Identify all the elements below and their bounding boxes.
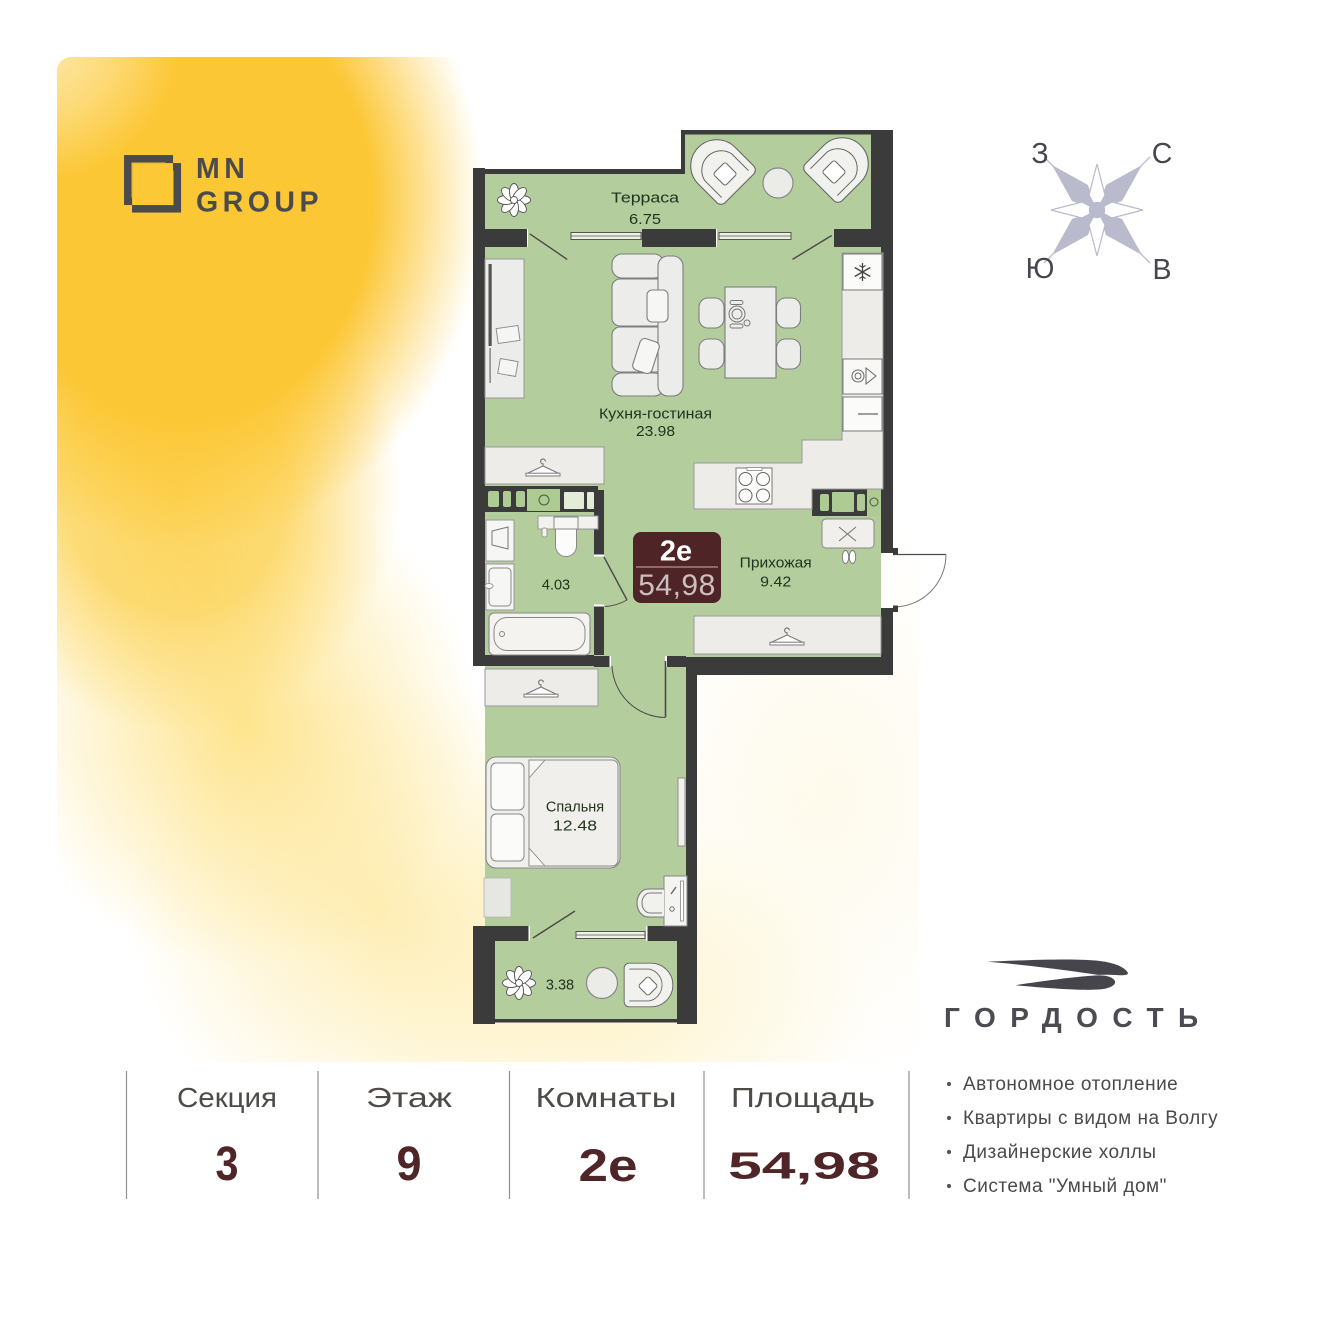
svg-text:GROUP: GROUP — [196, 187, 323, 219]
svg-text:Площадь: Площадь — [731, 1082, 875, 1113]
svg-text:Этаж: Этаж — [366, 1082, 452, 1113]
svg-text:Дизайнерские холлы: Дизайнерские холлы — [963, 1142, 1157, 1163]
svg-text:В: В — [1152, 254, 1171, 286]
svg-text:ГОРДОСТЬ: ГОРДОСТЬ — [944, 1002, 1213, 1033]
svg-text:2е: 2е — [660, 536, 692, 568]
svg-text:54,98: 54,98 — [728, 1146, 880, 1188]
svg-text:3.38: 3.38 — [546, 978, 574, 994]
svg-text:Кухня-гостиная: Кухня-гостиная — [599, 407, 712, 423]
svg-text:3: 3 — [216, 1138, 239, 1191]
svg-text:6.75: 6.75 — [629, 212, 661, 228]
svg-text:54,98: 54,98 — [638, 569, 716, 602]
svg-text:12.48: 12.48 — [553, 819, 597, 835]
svg-text:Автономное отопление: Автономное отопление — [963, 1074, 1178, 1095]
svg-text:4.03: 4.03 — [542, 578, 570, 594]
svg-text:2е: 2е — [579, 1140, 638, 1191]
svg-text:Квартиры с видом на Волгу: Квартиры с видом на Волгу — [963, 1108, 1218, 1129]
svg-text:MN: MN — [196, 153, 249, 185]
svg-text:9: 9 — [397, 1138, 422, 1191]
svg-text:9.42: 9.42 — [760, 575, 791, 591]
svg-text:С: С — [1152, 138, 1173, 170]
svg-text:Комнаты: Комнаты — [536, 1082, 677, 1113]
svg-text:Ю: Ю — [1026, 253, 1055, 285]
svg-text:Система "Умный дом": Система "Умный дом" — [963, 1176, 1167, 1197]
svg-text:З: З — [1031, 138, 1048, 170]
svg-text:Терраса: Терраса — [611, 191, 680, 207]
svg-text:Спальня: Спальня — [546, 800, 604, 816]
svg-text:23.98: 23.98 — [636, 424, 675, 440]
svg-text:Секция: Секция — [177, 1082, 277, 1113]
svg-text:Прихожая: Прихожая — [740, 556, 812, 572]
